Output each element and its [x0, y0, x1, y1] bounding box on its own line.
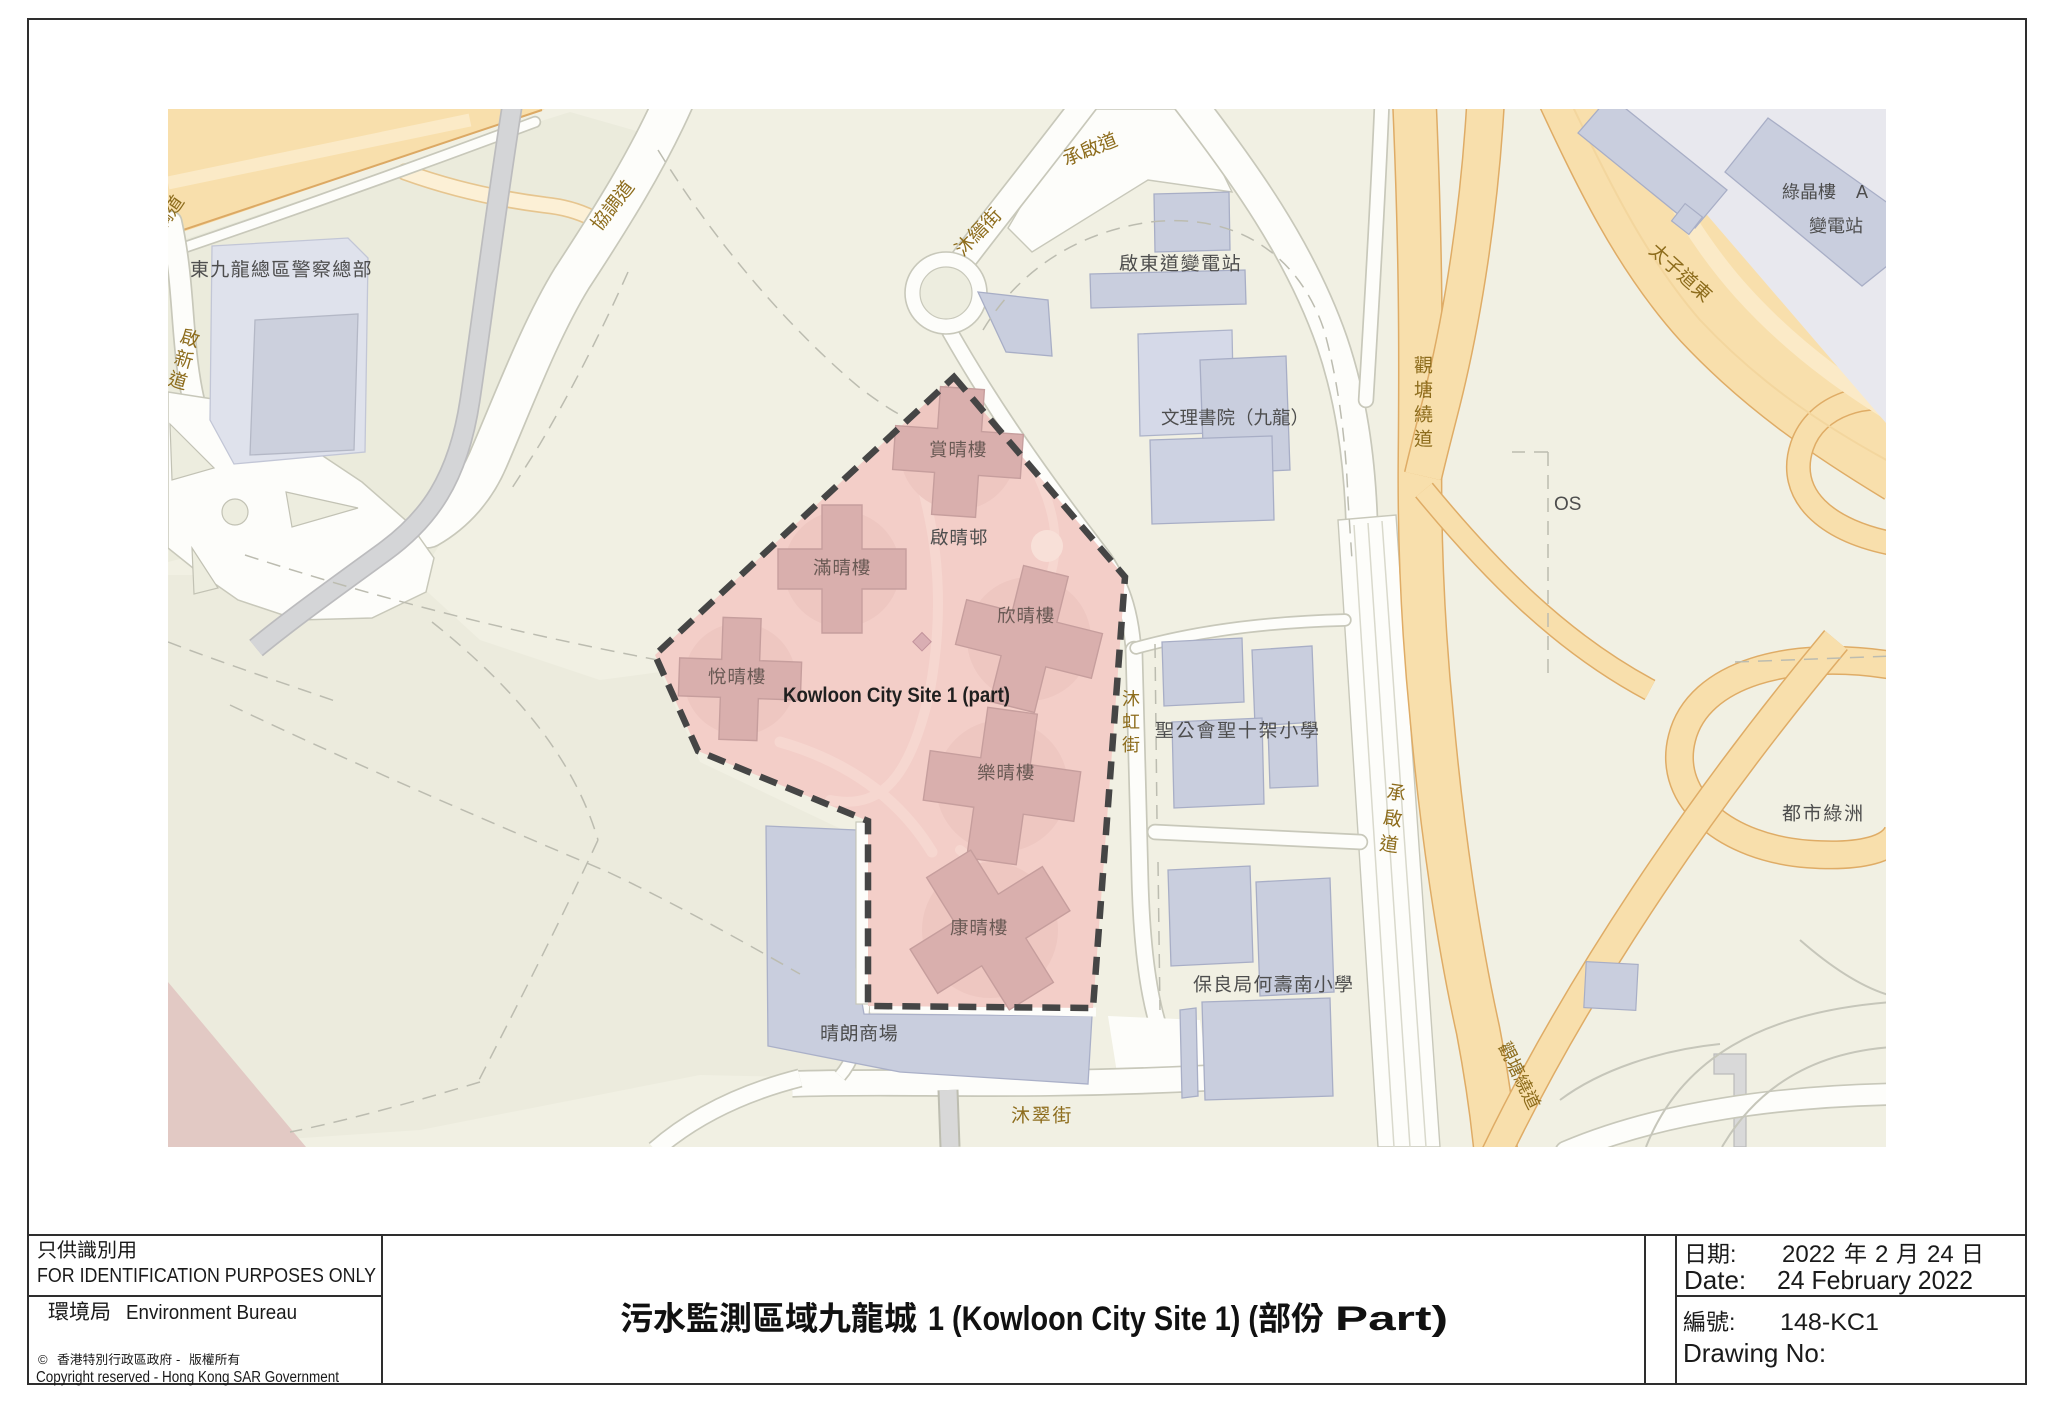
svg-text:Part): Part) [1335, 1300, 1448, 1338]
svg-text:24 February 2022: 24 February 2022 [1777, 1265, 1973, 1295]
svg-text:Environment Bureau: Environment Bureau [126, 1302, 297, 1324]
svg-text:Date:: Date: [1684, 1265, 1746, 1295]
svg-text:Copyright reserved - Hong Kong: Copyright reserved - Hong Kong SAR Gover… [36, 1369, 340, 1386]
svg-text:Drawing No:: Drawing No: [1683, 1338, 1826, 1368]
svg-text:OS: OS [1554, 494, 1581, 515]
svg-text:1 (Kowloon City Site 1) (: 1 (Kowloon City Site 1) ( [928, 1300, 1259, 1338]
svg-text::: : [1729, 1309, 1735, 1335]
svg-text:Kowloon City Site 1 (part): Kowloon City Site 1 (part) [783, 683, 1010, 707]
svg-text:FOR IDENTIFICATION PURPOSES ON: FOR IDENTIFICATION PURPOSES ONLY [37, 1265, 376, 1287]
svg-text:A: A [1856, 182, 1868, 202]
svg-text::: : [1730, 1241, 1736, 1267]
svg-text:24: 24 [1927, 1241, 1954, 1268]
svg-text:148-KC1: 148-KC1 [1780, 1309, 1879, 1336]
svg-text:2022: 2022 [1782, 1241, 1835, 1268]
svg-text:2: 2 [1875, 1241, 1888, 1268]
svg-text:-: - [176, 1352, 180, 1367]
svg-text:©: © [38, 1352, 48, 1367]
